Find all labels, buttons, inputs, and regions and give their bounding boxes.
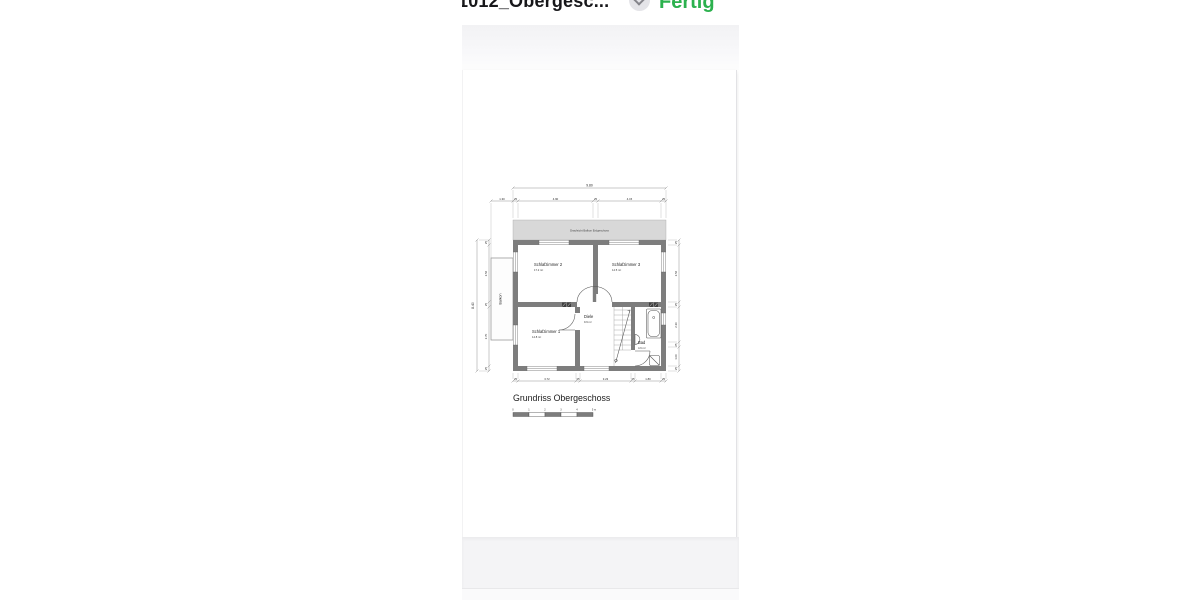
balcony-band-label: Draufsicht Balkon Erdgeschoss bbox=[570, 229, 609, 233]
dim-bottom-5: 1.80 bbox=[645, 377, 651, 381]
room-area-schlafzimmer-1: 14.8 m² bbox=[532, 335, 541, 339]
shower bbox=[650, 356, 660, 366]
dim-left-3: 3.70 bbox=[484, 333, 488, 339]
scale-label-0: 0 bbox=[512, 409, 514, 412]
scale-label-2: 2 bbox=[544, 409, 546, 412]
room-label-diele: Diele bbox=[584, 314, 594, 319]
room-area-bad: 4.6 m² bbox=[638, 346, 646, 350]
page-gap bbox=[462, 537, 739, 588]
chevron-down-icon bbox=[633, 0, 644, 6]
dim-right-0: 25 bbox=[674, 241, 678, 245]
dim-top-0: 1.30 bbox=[499, 197, 505, 201]
room-label-bad: Bad bbox=[638, 340, 646, 345]
room-area-schlafzimmer-2: 17.2 m² bbox=[534, 268, 543, 272]
dim-right-2: 25 bbox=[674, 303, 678, 307]
pdf-page[interactable]: 9.80 8.40 1.30 25 4.90 25 4.15 25 25 3.7… bbox=[462, 70, 737, 537]
room-label-schlafzimmer-3: Schlafzimmer 3 bbox=[612, 262, 641, 267]
title-dropdown-button[interactable] bbox=[629, 0, 650, 11]
dim-bottom-3: 3.23 bbox=[603, 377, 609, 381]
room-area-schlafzimmer-3: 14.5 m² bbox=[612, 268, 621, 272]
dim-left-0: 25 bbox=[484, 241, 488, 245]
dim-top-2: 4.90 bbox=[553, 197, 559, 201]
dim-left-2: 25 bbox=[484, 303, 488, 307]
dim-bottom-6: 25 bbox=[662, 377, 666, 381]
document-title: 1012_Obergesc... bbox=[462, 0, 609, 12]
dim-bottom-1: 3.72 bbox=[544, 377, 550, 381]
dim-right-1: 3.56 bbox=[674, 270, 678, 276]
room-area-diele: 9.9 m² bbox=[584, 320, 592, 324]
scale-label-4: 4 bbox=[576, 409, 578, 412]
dim-right-5: 1.00 bbox=[674, 354, 678, 360]
plan-title: Grundriss Obergeschoss bbox=[513, 393, 611, 403]
floor-plan-drawing: 9.80 8.40 1.30 25 4.90 25 4.15 25 25 3.7… bbox=[463, 70, 738, 537]
document-viewer: 1012_Obergesc... Fertig 9.80 8.40 1.30 2… bbox=[462, 0, 739, 600]
scale-label-1: 1 bbox=[528, 409, 530, 412]
room-label-schlafzimmer-2: Schlafzimmer 2 bbox=[534, 262, 563, 267]
room-label-balkon: Balkon bbox=[499, 294, 503, 305]
dim-bottom-0: 25 bbox=[514, 377, 518, 381]
toolbar-gap bbox=[462, 25, 739, 70]
next-page-top[interactable] bbox=[462, 588, 739, 600]
dim-right-6: 25 bbox=[674, 367, 678, 371]
dim-top-4: 4.15 bbox=[627, 197, 633, 201]
stairs bbox=[614, 307, 631, 366]
done-button[interactable]: Fertig bbox=[659, 0, 715, 14]
dim-right-4: 25 bbox=[674, 343, 678, 347]
dim-right-3: 2.36 bbox=[674, 322, 678, 328]
dim-bottom-2: 25 bbox=[576, 377, 580, 381]
dim-top-5: 25 bbox=[662, 197, 666, 201]
dim-left-1: 3.56 bbox=[484, 270, 488, 276]
dim-top-3: 25 bbox=[594, 197, 598, 201]
scale-bar: 0 1 2 3 4 5 m bbox=[512, 409, 596, 417]
dim-bottom-4: 25 bbox=[631, 377, 635, 381]
bathtub bbox=[647, 309, 662, 338]
scale-label-3: 3 bbox=[560, 409, 562, 412]
doors bbox=[559, 287, 650, 367]
dim-top-1: 25 bbox=[514, 197, 518, 201]
dim-overall-width: 9.80 bbox=[586, 184, 593, 188]
dim-overall-height: 8.40 bbox=[471, 302, 475, 309]
room-label-schlafzimmer-1: Schlafzimmer 1 bbox=[532, 329, 561, 334]
scale-label-5: 5 m bbox=[592, 409, 596, 412]
dim-left-4: 25 bbox=[484, 367, 488, 371]
